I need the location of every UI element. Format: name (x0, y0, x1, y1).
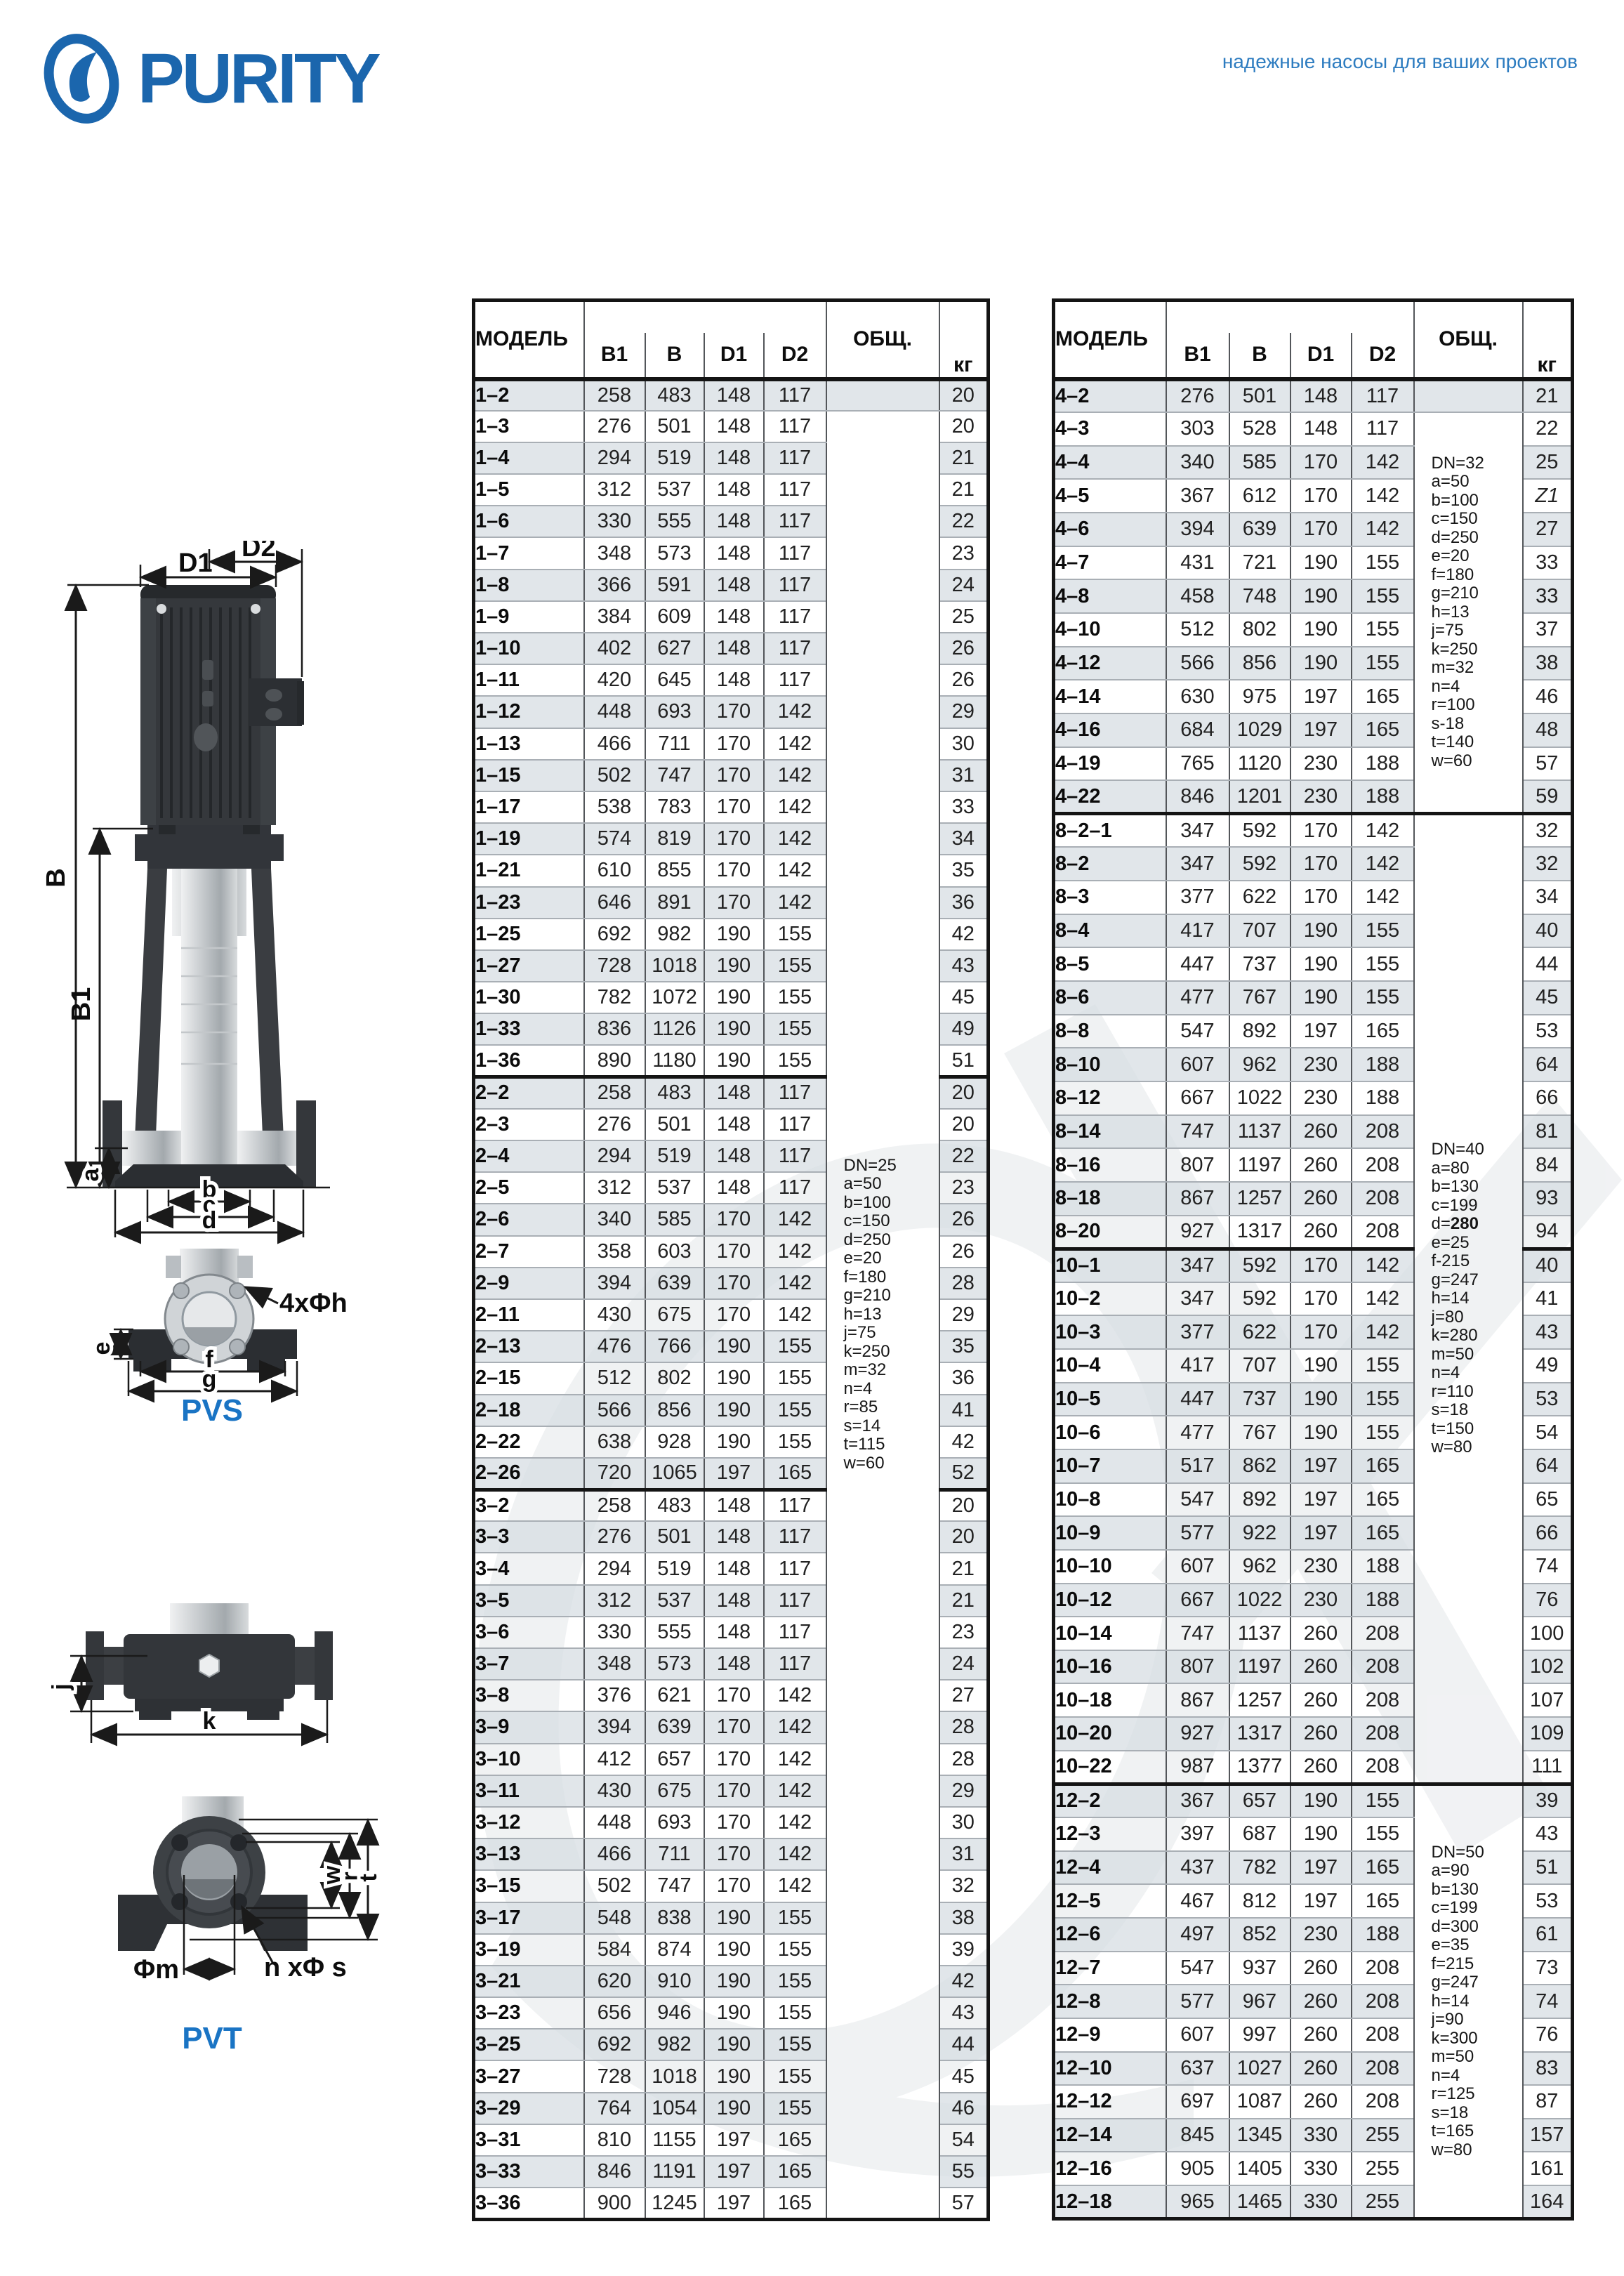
table-row: 8–2–1347592170142DN=40a=80b=130c=199d=28… (1054, 814, 1573, 848)
value-cell: 962 (1229, 1550, 1290, 1584)
note-line: f-215 (1432, 1252, 1522, 1271)
value-cell: 537 (645, 1172, 704, 1204)
value-cell: 148 (704, 601, 764, 633)
value-cell: 155 (764, 919, 826, 950)
brand-logo: PURITY (35, 28, 378, 130)
value-cell: 208 (1352, 1115, 1414, 1149)
value-cell: 810 (584, 2124, 645, 2156)
note-line: a=50 (844, 1175, 939, 1194)
table-row: 1–3276501148117DN=25a=50b=100c=150d=250e… (474, 411, 989, 442)
value-cell: 812 (1229, 1884, 1290, 1918)
model-cell: 1–17 (474, 791, 584, 823)
value-cell: 142 (1352, 1249, 1414, 1282)
value-cell: 856 (1229, 647, 1290, 680)
value-cell: 377 (1166, 1315, 1229, 1349)
value-cell: 208 (1352, 1751, 1414, 1784)
value-cell: 502 (584, 1870, 645, 1902)
kg-cell: 64 (1523, 1449, 1573, 1483)
value-cell: 538 (584, 791, 645, 823)
value-cell: 639 (1229, 513, 1290, 546)
value-cell: 142 (1352, 1315, 1414, 1349)
value-cell: 155 (764, 1362, 826, 1394)
value-cell: 148 (704, 506, 764, 537)
page: PURITY надежные насосы для ваших проекто… (0, 0, 1624, 2276)
model-cell: 3–6 (474, 1617, 584, 1648)
model-cell: 1–25 (474, 919, 584, 950)
value-cell: 148 (704, 1077, 764, 1109)
value-cell: 142 (1352, 513, 1414, 546)
value-cell: 748 (1229, 579, 1290, 613)
note-line: g=210 (844, 1287, 939, 1305)
pvs-caption: PVS (142, 1393, 282, 1428)
value-cell: 188 (1352, 1048, 1414, 1081)
kg-cell: 94 (1523, 1216, 1573, 1249)
table-row: 1–225848314811720 (474, 379, 989, 411)
column-header-b1: B1 (1166, 333, 1229, 379)
value-cell: 190 (704, 1045, 764, 1077)
value-cell: 142 (1352, 881, 1414, 914)
value-cell: 230 (1290, 1048, 1352, 1081)
note-line: a=50 (1432, 473, 1522, 492)
value-cell: 377 (1166, 881, 1229, 914)
note-line: k=250 (844, 1343, 939, 1362)
value-cell: 852 (1229, 1918, 1290, 1952)
kg-cell: 93 (1523, 1182, 1573, 1216)
note-line: h=13 (844, 1305, 939, 1324)
value-cell: 862 (1229, 1449, 1290, 1483)
model-cell: 1–15 (474, 760, 584, 791)
value-cell: 276 (584, 1109, 645, 1140)
value-cell: 384 (584, 601, 645, 633)
kg-cell: 31 (939, 760, 989, 791)
value-cell: 148 (704, 411, 764, 442)
value-cell: 208 (1352, 2085, 1414, 2119)
value-cell: 117 (764, 1077, 826, 1109)
overall-notes-cell: DN=32a=50b=100c=150d=250e=20f=180g=210h=… (1414, 412, 1523, 814)
value-cell: 170 (704, 791, 764, 823)
value-cell: 766 (645, 1331, 704, 1362)
value-cell: 148 (704, 1585, 764, 1617)
value-cell: 312 (584, 474, 645, 506)
value-cell: 117 (764, 1648, 826, 1680)
value-cell: 190 (1290, 1383, 1352, 1416)
kg-cell: 52 (939, 1458, 989, 1489)
value-cell: 258 (584, 1489, 645, 1521)
svg-text:j: j (48, 1683, 74, 1690)
value-cell: 230 (1290, 1584, 1352, 1617)
value-cell: 711 (645, 1838, 704, 1870)
value-cell: 155 (764, 2093, 826, 2124)
value-cell: 155 (1352, 579, 1414, 613)
value-cell: 117 (764, 1585, 826, 1617)
value-cell: 937 (1229, 1952, 1290, 1985)
value-cell: 547 (1166, 1483, 1229, 1517)
model-cell: 3–12 (474, 1807, 584, 1838)
value-cell: 312 (584, 1585, 645, 1617)
kg-cell: 24 (939, 1648, 989, 1680)
value-cell: 1027 (1229, 2052, 1290, 2086)
value-cell: 1377 (1229, 1751, 1290, 1784)
overall-notes-cell: DN=40a=80b=130c=199d=280e=25f-215g=247h=… (1414, 814, 1523, 1784)
kg-cell: 109 (1523, 1717, 1573, 1751)
model-cell: 1–7 (474, 537, 584, 569)
value-cell: 621 (645, 1680, 704, 1711)
model-cell: 3–13 (474, 1838, 584, 1870)
dimension-notes: DN=40a=80b=130c=199d=280e=25f-215g=247h=… (1415, 1140, 1522, 1457)
column-header-spacer (1166, 301, 1414, 333)
kg-cell: 22 (939, 1140, 989, 1172)
value-cell: 1022 (1229, 1081, 1290, 1115)
value-cell: 637 (1166, 2052, 1229, 2086)
value-cell: 519 (645, 442, 704, 474)
value-cell: 330 (584, 1617, 645, 1648)
model-cell: 4–16 (1054, 713, 1166, 747)
value-cell: 155 (1352, 647, 1414, 680)
value-cell: 255 (1352, 2119, 1414, 2152)
value-cell: 1317 (1229, 1216, 1290, 1249)
value-cell: 197 (1290, 1884, 1352, 1918)
model-cell: 1–23 (474, 887, 584, 919)
model-cell: 3–7 (474, 1648, 584, 1680)
model-cell: 10–5 (1054, 1383, 1166, 1416)
kg-cell: 26 (939, 1236, 989, 1268)
model-cell: 1–3 (474, 411, 584, 442)
model-cell: 10–4 (1054, 1349, 1166, 1383)
value-cell: 1072 (645, 982, 704, 1013)
value-cell: 155 (1352, 1416, 1414, 1449)
value-cell: 573 (645, 537, 704, 569)
value-cell: 197 (704, 1458, 764, 1489)
kg-cell: 46 (939, 2093, 989, 2124)
value-cell: 693 (645, 696, 704, 728)
kg-cell: 26 (939, 633, 989, 664)
kg-cell: 51 (1523, 1851, 1573, 1885)
kg-cell: 42 (939, 1426, 989, 1458)
value-cell: 997 (1229, 2018, 1290, 2052)
value-cell: 737 (1229, 1383, 1290, 1416)
kg-cell: 20 (939, 1521, 989, 1553)
value-cell: 230 (1290, 1550, 1352, 1584)
value-cell: 117 (1352, 412, 1414, 446)
value-cell: 230 (1290, 1918, 1352, 1952)
note-line: h=14 (1432, 1992, 1522, 2011)
value-cell: 197 (1290, 1449, 1352, 1483)
value-cell: 607 (1166, 1550, 1229, 1584)
value-cell: 197 (704, 2124, 764, 2156)
value-cell: 165 (1352, 680, 1414, 713)
kg-cell: 74 (1523, 1550, 1573, 1584)
value-cell: 585 (645, 1204, 704, 1235)
column-header-overall: ОБЩ. (826, 301, 939, 379)
model-cell: 10–12 (1054, 1584, 1166, 1617)
kg-cell: 38 (1523, 647, 1573, 680)
kg-cell: 83 (1523, 2052, 1573, 2086)
pvt-caption: PVT (142, 2021, 282, 2056)
model-cell: 8–2 (1054, 847, 1166, 881)
value-cell: 783 (645, 791, 704, 823)
value-cell: 458 (1166, 579, 1229, 613)
model-cell: 10–20 (1054, 1717, 1166, 1751)
dimension-notes: DN=32a=50b=100c=150d=250e=20f=180g=210h=… (1415, 454, 1522, 771)
value-cell: 208 (1352, 1617, 1414, 1650)
value-cell: 607 (1166, 2018, 1229, 2052)
value-cell: 148 (704, 1553, 764, 1584)
value-cell: 687 (1229, 1817, 1290, 1851)
model-cell: 2–15 (474, 1362, 584, 1394)
value-cell: 1155 (645, 2124, 704, 2156)
model-cell: 2–22 (474, 1426, 584, 1458)
value-cell: 675 (645, 1775, 704, 1807)
table-row: 12–2367657190155DN=50a=90b=130c=199d=300… (1054, 1784, 1573, 1817)
svg-text:D1: D1 (178, 548, 213, 578)
value-cell: 190 (704, 1426, 764, 1458)
value-cell: 190 (1290, 579, 1352, 613)
model-cell: 1–12 (474, 696, 584, 728)
kg-cell: 42 (939, 1966, 989, 1997)
value-cell: 874 (645, 1934, 704, 1966)
value-cell: 170 (1290, 814, 1352, 848)
value-cell: 620 (584, 1966, 645, 1997)
value-cell: 728 (584, 950, 645, 982)
model-cell: 8–12 (1054, 1081, 1166, 1115)
value-cell: 1405 (1229, 2152, 1290, 2185)
value-cell: 208 (1352, 1182, 1414, 1216)
value-cell: 148 (704, 537, 764, 569)
value-cell: 630 (1166, 680, 1229, 713)
model-cell: 3–8 (474, 1680, 584, 1711)
model-cell: 2–13 (474, 1331, 584, 1362)
model-cell: 12–10 (1054, 2052, 1166, 2086)
kg-cell: 32 (939, 1870, 989, 1902)
kg-cell: 22 (939, 506, 989, 537)
value-cell: 692 (584, 919, 645, 950)
value-cell: 188 (1352, 1081, 1414, 1115)
brand-logo-icon (35, 28, 133, 130)
value-cell: 170 (704, 1744, 764, 1775)
value-cell: 1180 (645, 1045, 704, 1077)
kg-cell: 29 (939, 1299, 989, 1331)
note-line: d=250 (1432, 529, 1522, 548)
value-cell: 657 (645, 1744, 704, 1775)
model-cell: 4–6 (1054, 513, 1166, 546)
value-cell: 142 (764, 1838, 826, 1870)
kg-cell: 32 (1523, 814, 1573, 848)
value-cell: 208 (1352, 1148, 1414, 1182)
kg-cell: 40 (1523, 1249, 1573, 1282)
value-cell: 142 (764, 728, 826, 760)
dimension-notes: DN=25a=50b=100c=150d=250e=20f=180g=210h=… (827, 1157, 939, 1473)
svg-text:B1: B1 (67, 987, 96, 1022)
value-cell: 707 (1229, 1349, 1290, 1383)
value-cell: 819 (645, 823, 704, 855)
model-cell: 2–26 (474, 1458, 584, 1489)
value-cell: 142 (764, 1775, 826, 1807)
model-cell: 4–19 (1054, 747, 1166, 781)
value-cell: 230 (1290, 747, 1352, 781)
value-cell: 737 (1229, 947, 1290, 981)
value-cell: 190 (704, 2029, 764, 2060)
kg-cell: 34 (939, 823, 989, 855)
value-cell: 807 (1166, 1148, 1229, 1182)
value-cell: 747 (1166, 1617, 1229, 1650)
value-cell: 376 (584, 1680, 645, 1711)
model-cell: 4–4 (1054, 446, 1166, 480)
value-cell: 1245 (645, 2188, 704, 2219)
kg-cell: 61 (1523, 1918, 1573, 1952)
model-cell: 8–6 (1054, 981, 1166, 1015)
value-cell: 547 (1166, 1015, 1229, 1048)
model-cell: 12–18 (1054, 2185, 1166, 2219)
model-cell: 3–9 (474, 1711, 584, 1743)
value-cell: 190 (704, 1331, 764, 1362)
value-cell: 155 (1352, 947, 1414, 981)
overall-cell (826, 379, 939, 411)
kg-cell: 21 (1523, 379, 1573, 413)
value-cell: 431 (1166, 546, 1229, 580)
model-cell: 2–2 (474, 1077, 584, 1109)
value-cell: 845 (1166, 2119, 1229, 2152)
value-cell: 260 (1290, 2018, 1352, 2052)
value-cell: 807 (1166, 1650, 1229, 1684)
note-line: m=32 (1432, 659, 1522, 678)
value-cell: 142 (1352, 1282, 1414, 1316)
kg-cell: 29 (939, 696, 989, 728)
kg-cell: 164 (1523, 2185, 1573, 2219)
value-cell: 603 (645, 1236, 704, 1268)
value-cell: 142 (1352, 814, 1414, 848)
value-cell: 900 (584, 2188, 645, 2219)
model-cell: 1–27 (474, 950, 584, 982)
value-cell: 692 (584, 2029, 645, 2060)
value-cell: 394 (584, 1268, 645, 1299)
kg-cell: 66 (1523, 1516, 1573, 1550)
value-cell: 117 (764, 1172, 826, 1204)
value-cell: 155 (764, 1426, 826, 1458)
model-cell: 4–5 (1054, 479, 1166, 513)
kg-cell: 38 (939, 1902, 989, 1934)
value-cell: 258 (584, 379, 645, 411)
column-header-model: МОДЕЛЬ (1054, 301, 1166, 379)
value-cell: 148 (704, 1109, 764, 1140)
note-line: m=50 (1432, 2048, 1522, 2067)
svg-text:a: a (77, 1167, 104, 1181)
value-cell: 258 (584, 1077, 645, 1109)
value-cell: 430 (584, 1299, 645, 1331)
value-cell: 782 (1229, 1851, 1290, 1885)
value-cell: 117 (764, 1617, 826, 1648)
pvt-flange-drawing: w r t Φm n xΦ s (118, 1796, 382, 1985)
value-cell: 165 (764, 1458, 826, 1489)
value-cell: 721 (1229, 546, 1290, 580)
kg-cell: 44 (939, 2029, 989, 2060)
value-cell: 170 (704, 1775, 764, 1807)
value-cell: 697 (1166, 2085, 1229, 2119)
model-cell: 3–15 (474, 1870, 584, 1902)
value-cell: 347 (1166, 814, 1229, 848)
kg-cell: 45 (939, 982, 989, 1013)
value-cell: 910 (645, 1966, 704, 1997)
value-cell: 1257 (1229, 1182, 1290, 1216)
value-cell: 197 (704, 2188, 764, 2219)
model-cell: 1–10 (474, 633, 584, 664)
note-line: c=199 (1432, 1899, 1522, 1918)
note-line: g=247 (1432, 1271, 1522, 1290)
value-cell: 684 (1166, 713, 1229, 747)
note-line: g=210 (1432, 584, 1522, 603)
brand-logo-text: PURITY (138, 39, 378, 119)
note-line: n=4 (1432, 678, 1522, 697)
value-cell: 190 (704, 1013, 764, 1045)
column-header-d2: D2 (764, 333, 826, 379)
model-cell: 3–36 (474, 2188, 584, 2219)
value-cell: 638 (584, 1426, 645, 1458)
value-cell: 982 (645, 919, 704, 950)
value-cell: 170 (704, 1870, 764, 1902)
note-line: DN=40 (1432, 1140, 1522, 1159)
model-cell: 1–33 (474, 1013, 584, 1045)
note-line: DN=25 (844, 1157, 939, 1176)
kg-cell: 59 (1523, 780, 1573, 814)
value-cell: 639 (645, 1711, 704, 1743)
value-cell: 1191 (645, 2156, 704, 2188)
model-cell: 2–4 (474, 1140, 584, 1172)
value-cell: 155 (1352, 1817, 1414, 1851)
value-cell: 555 (645, 506, 704, 537)
value-cell: 667 (1166, 1584, 1229, 1617)
model-cell: 8–20 (1054, 1216, 1166, 1249)
value-cell: 892 (1229, 1483, 1290, 1517)
value-cell: 190 (1290, 647, 1352, 680)
kg-cell: 42 (939, 919, 989, 950)
dimension-notes: DN=50a=90b=130c=199d=300e=35f=215g=247h=… (1415, 1843, 1522, 2160)
value-cell: 466 (584, 728, 645, 760)
value-cell: 260 (1290, 1148, 1352, 1182)
value-cell: 260 (1290, 1751, 1352, 1784)
value-cell: 477 (1166, 981, 1229, 1015)
column-header-overall: ОБЩ. (1414, 301, 1523, 379)
value-cell: 501 (1229, 379, 1290, 413)
value-cell: 165 (764, 2156, 826, 2188)
value-cell: 573 (645, 1648, 704, 1680)
kg-cell: 43 (939, 950, 989, 982)
model-cell: 3–33 (474, 2156, 584, 2188)
header-tagline: надежные насосы для ваших проектов (1222, 51, 1578, 73)
value-cell: 294 (584, 442, 645, 474)
value-cell: 142 (764, 1870, 826, 1902)
kg-cell: 44 (1523, 947, 1573, 981)
value-cell: 592 (1229, 1249, 1290, 1282)
value-cell: 197 (1290, 1516, 1352, 1550)
model-cell: 10–9 (1054, 1516, 1166, 1550)
model-cell: 8–18 (1054, 1182, 1166, 1216)
model-cell: 12–12 (1054, 2085, 1166, 2119)
note-line: h=13 (1432, 603, 1522, 622)
kg-cell: 45 (1523, 981, 1573, 1015)
model-cell: 10–8 (1054, 1483, 1166, 1517)
value-cell: 537 (645, 474, 704, 506)
value-cell: 905 (1166, 2152, 1229, 2185)
kg-cell: 54 (1523, 1416, 1573, 1449)
value-cell: 547 (1166, 1952, 1229, 1985)
value-cell: 483 (645, 379, 704, 411)
kg-cell: Z1 (1523, 479, 1573, 513)
value-cell: 501 (645, 1521, 704, 1553)
kg-cell: 48 (1523, 713, 1573, 747)
kg-cell: 32 (1523, 847, 1573, 881)
value-cell: 467 (1166, 1884, 1229, 1918)
kg-cell: 43 (1523, 1315, 1573, 1349)
value-cell: 260 (1290, 1683, 1352, 1717)
